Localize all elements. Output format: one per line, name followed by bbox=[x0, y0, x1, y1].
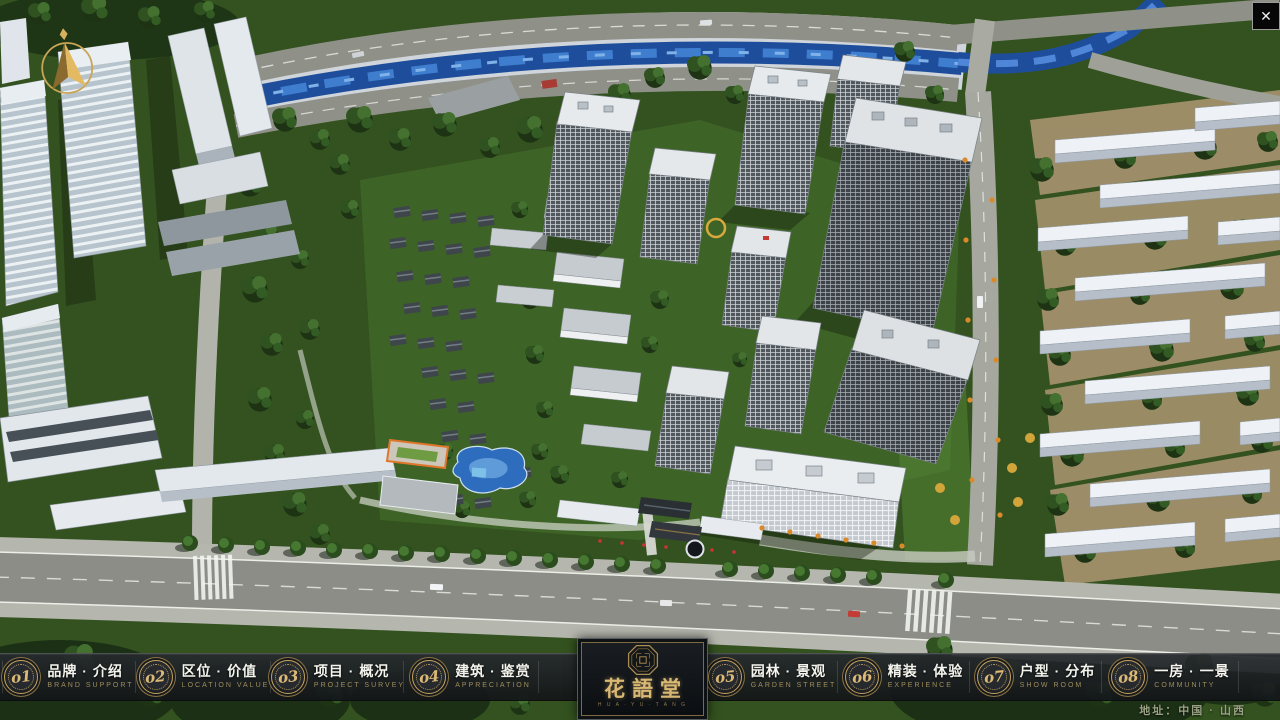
seal-emblem-icon bbox=[627, 644, 659, 676]
nav-item-subtitle: APPRECIATION bbox=[455, 682, 531, 690]
nav-item-label: 户型 · 分布 bbox=[1020, 664, 1095, 679]
nav-number-badge: o8 bbox=[1111, 660, 1145, 694]
nav-item-subtitle: GARDEN STREET bbox=[751, 682, 837, 690]
nav-item-label: 精装 · 体验 bbox=[888, 664, 963, 679]
nav-item-subtitle: EXPERIENCE bbox=[888, 682, 963, 690]
nav-item-label: 区位 · 价值 bbox=[182, 664, 270, 679]
nav-item-community[interactable]: o8 一房 · 一景 COMMUNITY bbox=[1102, 657, 1239, 697]
nav-number-badge: o1 bbox=[4, 660, 38, 694]
nav-item-subtitle: PROJECT SURVEY bbox=[314, 682, 405, 690]
nav-item-garden[interactable]: o5 园林 · 景观 GARDEN STREET bbox=[706, 657, 838, 697]
nav-item-subtitle: COMMUNITY bbox=[1154, 682, 1229, 690]
presentation-window: ✕ o1 品牌 · 介绍 BRAND SUPPORT o2 区位 · 价值 LO… bbox=[0, 0, 1280, 720]
nav-number-badge: o3 bbox=[271, 660, 305, 694]
nav-item-subtitle: BRAND SUPPORT bbox=[47, 682, 133, 690]
nav-number-badge: o2 bbox=[139, 660, 173, 694]
nav-item-label: 一房 · 一景 bbox=[1154, 664, 1229, 679]
nav-number-badge: o6 bbox=[845, 660, 879, 694]
nav-item-label: 项目 · 概况 bbox=[314, 664, 405, 679]
nav-item-location[interactable]: o2 区位 · 价值 LOCATION VALUE bbox=[137, 657, 271, 697]
site-render bbox=[0, 0, 1280, 720]
nav-item-label: 建筑 · 鉴赏 bbox=[455, 664, 531, 679]
nav-number-badge: o4 bbox=[412, 660, 446, 694]
close-button[interactable]: ✕ bbox=[1252, 2, 1280, 30]
nav-number-badge: o5 bbox=[708, 660, 742, 694]
nav-item-architecture[interactable]: o4 建筑 · 鉴赏 APPRECIATION bbox=[404, 657, 539, 697]
nav-item-floorplans[interactable]: o7 户型 · 分布 SHOW ROOM bbox=[970, 657, 1102, 697]
compass-icon bbox=[36, 26, 98, 98]
nav-item-label: 园林 · 景观 bbox=[751, 664, 837, 679]
nav-number-badge: o7 bbox=[977, 660, 1011, 694]
logo-subtext: H U A · Y U · T A N G bbox=[598, 702, 687, 708]
project-logo[interactable]: 花語堂 H U A · Y U · T A N G bbox=[577, 638, 708, 720]
project-address: 地址：中国 · 山西 bbox=[1139, 702, 1246, 718]
nav-item-project[interactable]: o3 项目 · 概况 PROJECT SURVEY bbox=[272, 657, 404, 697]
nav-item-subtitle: LOCATION VALUE bbox=[182, 682, 270, 690]
nav-item-label: 品牌 · 介绍 bbox=[47, 664, 133, 679]
close-icon: ✕ bbox=[1260, 9, 1272, 23]
nav-item-experience[interactable]: o6 精装 · 体验 EXPERIENCE bbox=[838, 657, 970, 697]
nav-item-subtitle: SHOW ROOM bbox=[1020, 682, 1095, 690]
logo-title: 花語堂 bbox=[597, 678, 688, 699]
nav-item-brand[interactable]: o1 品牌 · 介绍 BRAND SUPPORT bbox=[2, 657, 136, 697]
